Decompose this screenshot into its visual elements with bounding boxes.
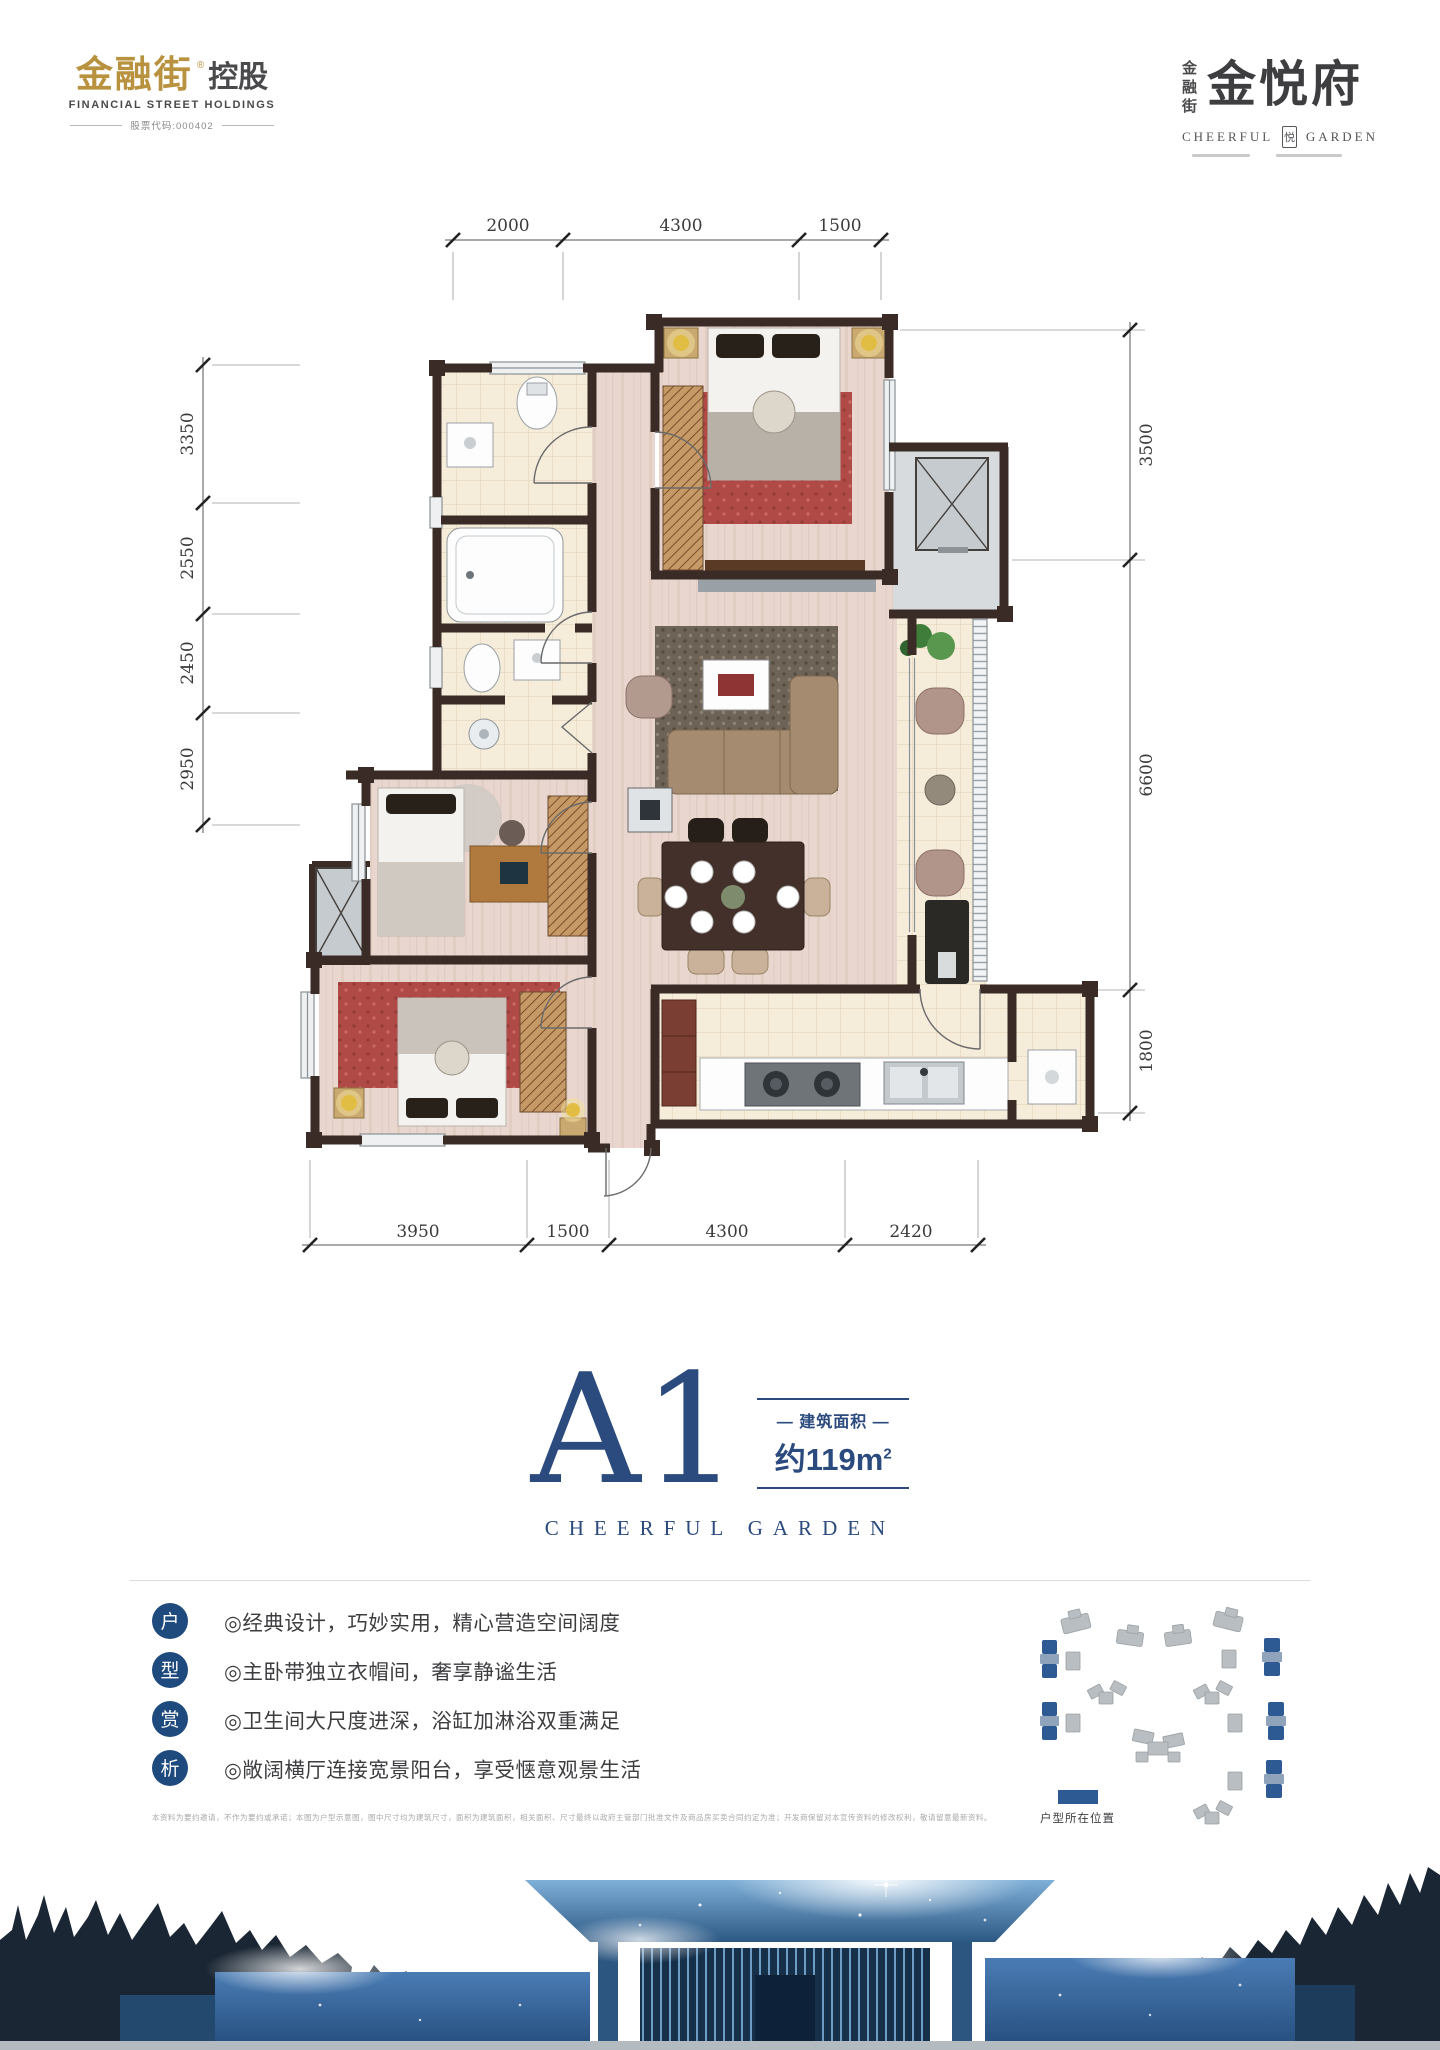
- stove: [745, 1063, 860, 1106]
- desk-chair: [499, 820, 525, 846]
- bedroom3-wardrobe: [520, 992, 566, 1112]
- balcony-table: [925, 775, 955, 805]
- unit-title-block: A1 — 建筑面积 — 约119m2 CHEERFUL GARDEN: [0, 1358, 1440, 1541]
- dim-bottom-2: 1500: [546, 1222, 589, 1242]
- fridge-cabinet: [662, 1000, 696, 1106]
- dimension-line-top: 2000 4300 1500: [445, 216, 889, 300]
- dimension-line-left: 3350 2550 2450 2950: [178, 357, 300, 833]
- toilet-2: [464, 644, 500, 692]
- feature-text: ◎经典设计，巧妙实用，精心营造空间阔度: [224, 1606, 620, 1636]
- dim-right-2: 6600: [1137, 753, 1157, 796]
- elevator-shaft-right: [916, 458, 988, 553]
- dim-right-3: 1800: [1137, 1029, 1157, 1072]
- unit-subtitle: CHEERFUL GARDEN: [0, 1516, 1440, 1541]
- area-number: 约119m: [775, 1442, 884, 1477]
- feature-text: ◎卫生间大尺度进深，浴缸加淋浴双重满足: [224, 1704, 620, 1734]
- area-sup: 2: [883, 1446, 891, 1463]
- area-box-bottom-line: [757, 1487, 909, 1489]
- bathtub: [447, 528, 563, 622]
- dim-left-2: 2550: [178, 536, 198, 579]
- area-box-top-line: [757, 1398, 909, 1400]
- dim-bottom-3: 4300: [705, 1222, 748, 1242]
- footer-building-image: [0, 1845, 1440, 2050]
- dim-bottom-4: 2420: [889, 1222, 932, 1242]
- feature-badge: 析: [152, 1750, 188, 1786]
- area-label: — 建筑面积 —: [757, 1408, 909, 1432]
- bed-round-pillow: [753, 391, 795, 433]
- legend-swatch: [1058, 1790, 1098, 1804]
- dim-left-3: 2450: [178, 641, 198, 684]
- section-divider: [130, 1580, 1310, 1581]
- sofa-chaise: [790, 676, 838, 794]
- dim-top-3: 1500: [818, 216, 861, 236]
- dim-top-2: 4300: [659, 216, 702, 236]
- dim-top-1: 2000: [486, 216, 529, 236]
- feature-row: 型 ◎主卧带独立衣帽间，奢享静谧生活: [152, 1645, 912, 1694]
- armchair: [626, 676, 672, 718]
- bookshelf: [548, 796, 588, 936]
- dim-bottom-1: 3950: [396, 1222, 439, 1242]
- area-value: 约119m2: [757, 1434, 909, 1479]
- feature-text: ◎敞阔横厅连接宽景阳台，享受惬意观景生活: [224, 1753, 641, 1783]
- dim-left-4: 2950: [178, 747, 198, 790]
- tv-panel: [705, 560, 865, 572]
- feature-row: 析 ◎敞阔横厅连接宽景阳台，享受惬意观景生活: [152, 1743, 912, 1792]
- floor-plan: 2000 4300 1500 3350 2550 2450 2950: [0, 0, 1440, 1310]
- feature-text: ◎主卧带独立衣帽间，奢享静谧生活: [224, 1655, 557, 1685]
- features-list: 户 ◎经典设计，巧妙实用，精心营造空间阔度 型 ◎主卧带独立衣帽间，奢享静谧生活…: [152, 1596, 912, 1792]
- balcony-window-band: [973, 618, 987, 981]
- feature-row: 户 ◎经典设计，巧妙实用，精心营造空间阔度: [152, 1596, 912, 1645]
- feature-badge: 型: [152, 1652, 188, 1688]
- lounge-chair: [916, 850, 964, 896]
- legend-label: 户型所在位置: [1040, 1811, 1115, 1825]
- dim-left-1: 3350: [178, 412, 198, 455]
- master-wardrobe: [663, 386, 703, 570]
- tv-console-sill: [698, 579, 876, 592]
- site-map: 户型所在位置: [1020, 1592, 1310, 1832]
- feature-badge: 赏: [152, 1701, 188, 1737]
- unit-code: A1: [531, 1358, 741, 1502]
- dim-right-1: 3500: [1137, 423, 1157, 466]
- dimension-line-bottom: 3950 1500 4300 2420: [302, 1160, 986, 1252]
- table-centerpiece: [721, 885, 745, 909]
- feature-row: 赏 ◎卫生间大尺度进深，浴缸加淋浴双重满足: [152, 1694, 912, 1743]
- ground-strip: [0, 2041, 1440, 2050]
- brochure-page: 金融街 ® 控股 FINANCIAL STREET HOLDINGS 股票代码:…: [0, 0, 1440, 2050]
- floor-hallway: [592, 372, 655, 1148]
- lounge-chair: [916, 688, 964, 734]
- unit-area-box: — 建筑面积 — 约119m2: [757, 1398, 909, 1489]
- feature-badge: 户: [152, 1603, 188, 1639]
